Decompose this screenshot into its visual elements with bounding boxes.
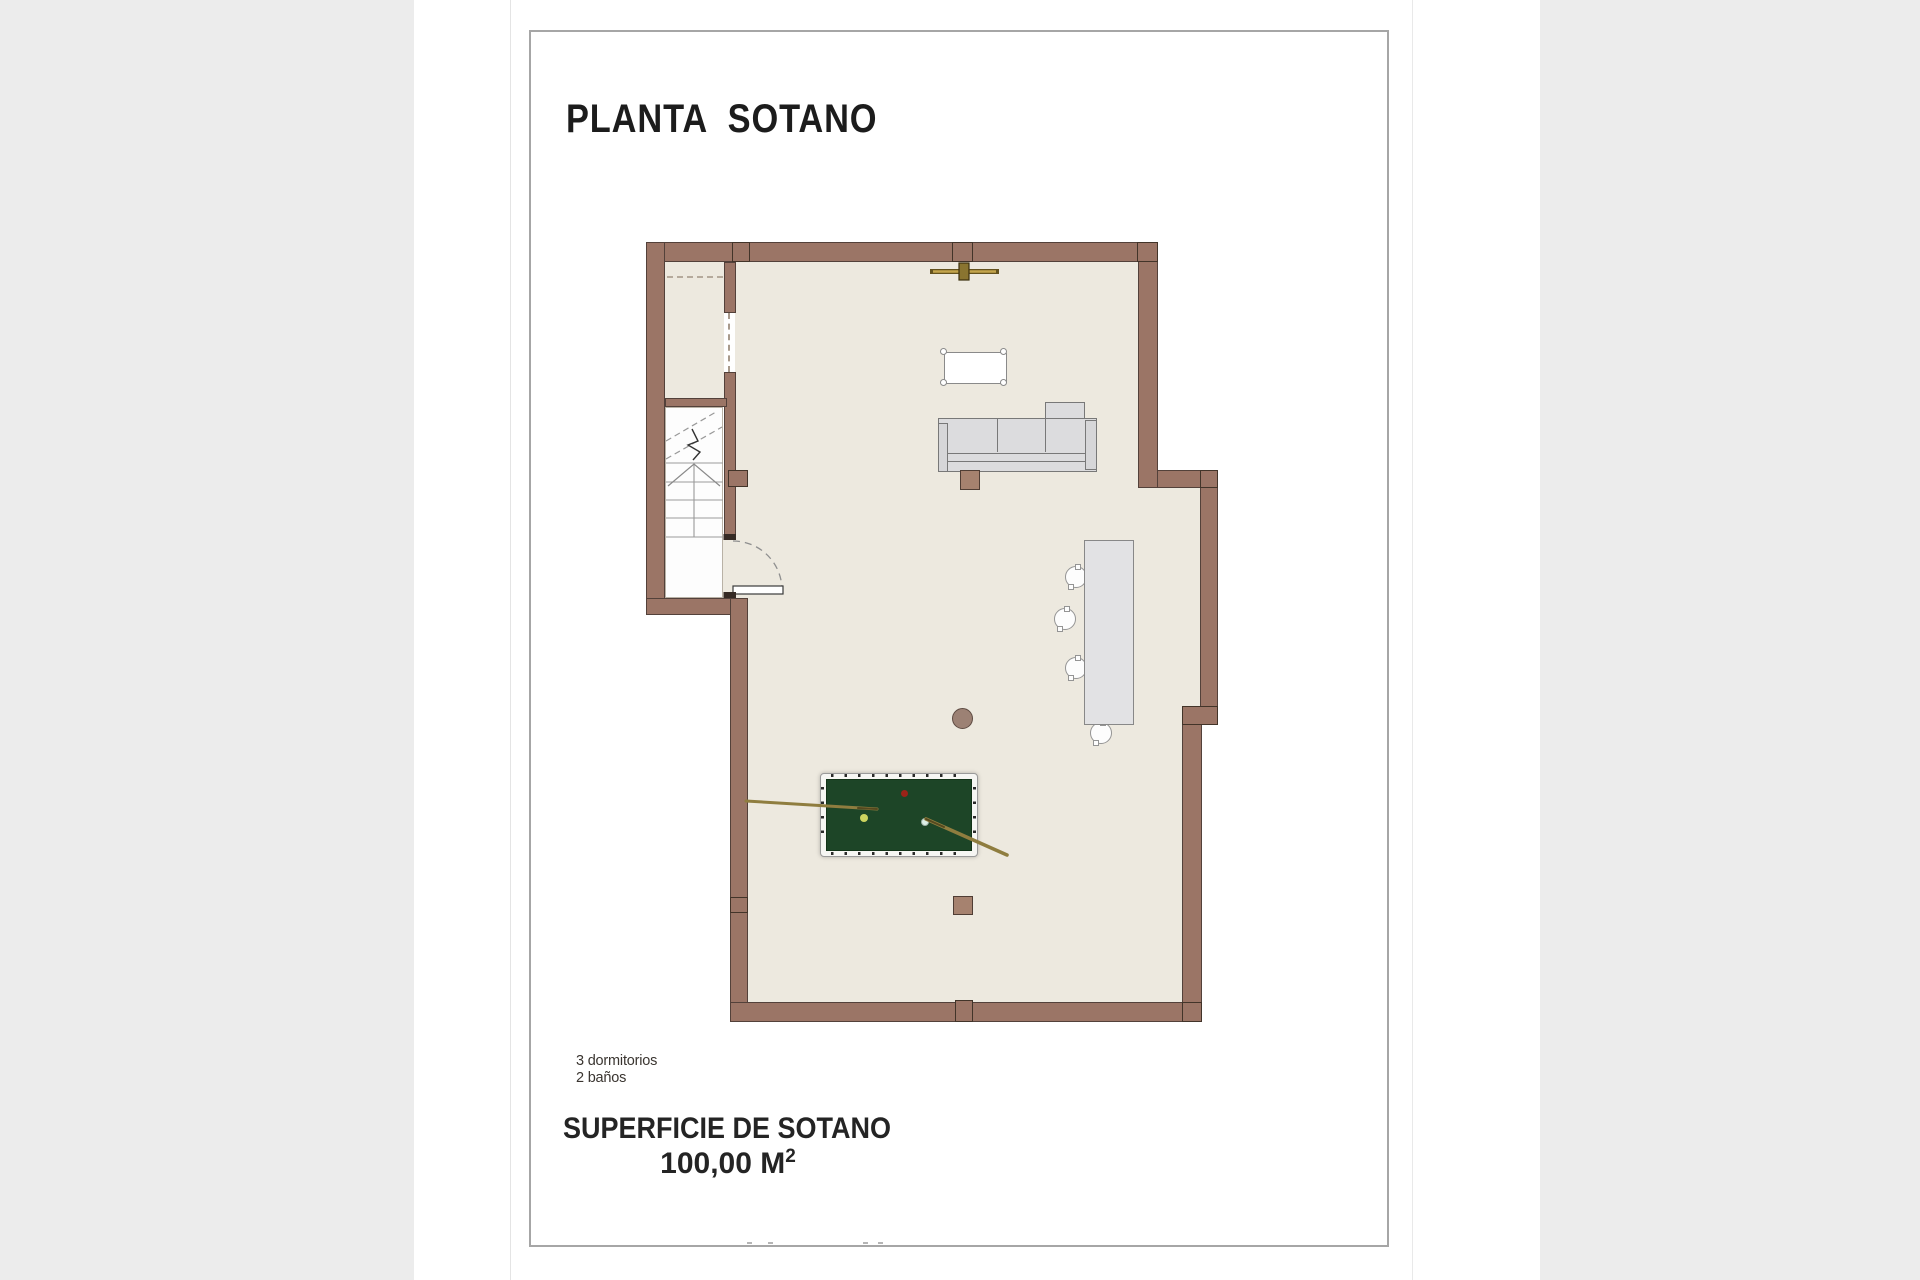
- column-round: [952, 708, 973, 729]
- exterior-wall-right-middle: [1200, 470, 1218, 725]
- exterior-wall-left-upper: [646, 242, 665, 615]
- page-title: PLANTA SOTANO: [566, 97, 877, 142]
- billiard-ball-red: [901, 790, 908, 797]
- sofa-seat-edge: [948, 453, 1085, 454]
- pool-table-sights-right: [973, 787, 976, 845]
- exterior-wall-top: [646, 242, 1158, 262]
- exterior-wall-left-lower: [730, 598, 748, 1022]
- wall-joint-right-jog: [1182, 706, 1218, 725]
- area-value-main: 100,00 M: [660, 1147, 785, 1180]
- wall-joint-top-left: [732, 242, 750, 262]
- pool-table-felt: [826, 779, 972, 851]
- closet-stair-divider-wall: [665, 398, 727, 407]
- wall-joint-bottom-right-corner: [1182, 1002, 1202, 1022]
- partition-wall-upper: [724, 262, 736, 313]
- area-label: SUPERFICIE DE SOTANO: [563, 1112, 891, 1146]
- pool-table-sights-top: [831, 774, 967, 777]
- billiard-ball-cue: [921, 818, 929, 826]
- note-bedrooms: 3 dormitorios: [576, 1053, 657, 1069]
- scan-artifact-dashes: [747, 1242, 752, 1244]
- exterior-wall-right-lower: [1182, 706, 1202, 1022]
- coffee-table: [944, 352, 1007, 384]
- sofa-armrest-left: [938, 423, 948, 472]
- area-value-superscript: 2: [785, 1146, 796, 1167]
- bar-stool: [1054, 608, 1076, 630]
- bar-stool: [1090, 722, 1112, 744]
- exterior-wall-right-upper: [1138, 242, 1158, 488]
- doorway-floor: [723, 540, 736, 598]
- stairwell: [665, 407, 723, 598]
- coffee-table-leg: [1000, 379, 1007, 386]
- area-value: 100,00 M2: [578, 1146, 878, 1181]
- bottom-wall-pillar: [955, 1000, 973, 1022]
- sofa-cushion-divider: [997, 418, 998, 452]
- storage-closet-floor: [665, 262, 724, 398]
- sofa-body: [938, 418, 1097, 472]
- sofa-cushion-divider: [1045, 418, 1046, 452]
- wall-joint-top-center: [952, 242, 973, 262]
- coffee-table-leg: [940, 379, 947, 386]
- scanned-plan-sheet: PLANTA SOTANO: [0, 0, 1920, 1280]
- coffee-table-leg: [1000, 348, 1007, 355]
- column-square-upper: [960, 470, 980, 490]
- wall-joint-right-step-corner: [1200, 470, 1218, 488]
- column-square-lower: [953, 896, 973, 915]
- closet-overhead-dashed-line: [667, 276, 723, 278]
- wall-joint-top-right-corner: [1137, 242, 1158, 262]
- sofa-seat-edge: [948, 461, 1085, 462]
- pool-table-sights-bottom: [831, 852, 967, 855]
- stair-partition-pillar: [728, 470, 748, 487]
- sofa-armrest-right: [1085, 420, 1097, 470]
- note-bathrooms: 2 baños: [576, 1070, 626, 1086]
- coffee-table-leg: [940, 348, 947, 355]
- bar-counter: [1084, 540, 1134, 725]
- page-fold-line-left: [510, 0, 511, 1280]
- billiard-ball-yellow: [860, 814, 868, 822]
- opening-dashed-line: [728, 313, 730, 372]
- pool-table-sights-left: [821, 787, 824, 845]
- wall-joint-left-lower: [730, 897, 748, 913]
- page-fold-line-right: [1412, 0, 1413, 1280]
